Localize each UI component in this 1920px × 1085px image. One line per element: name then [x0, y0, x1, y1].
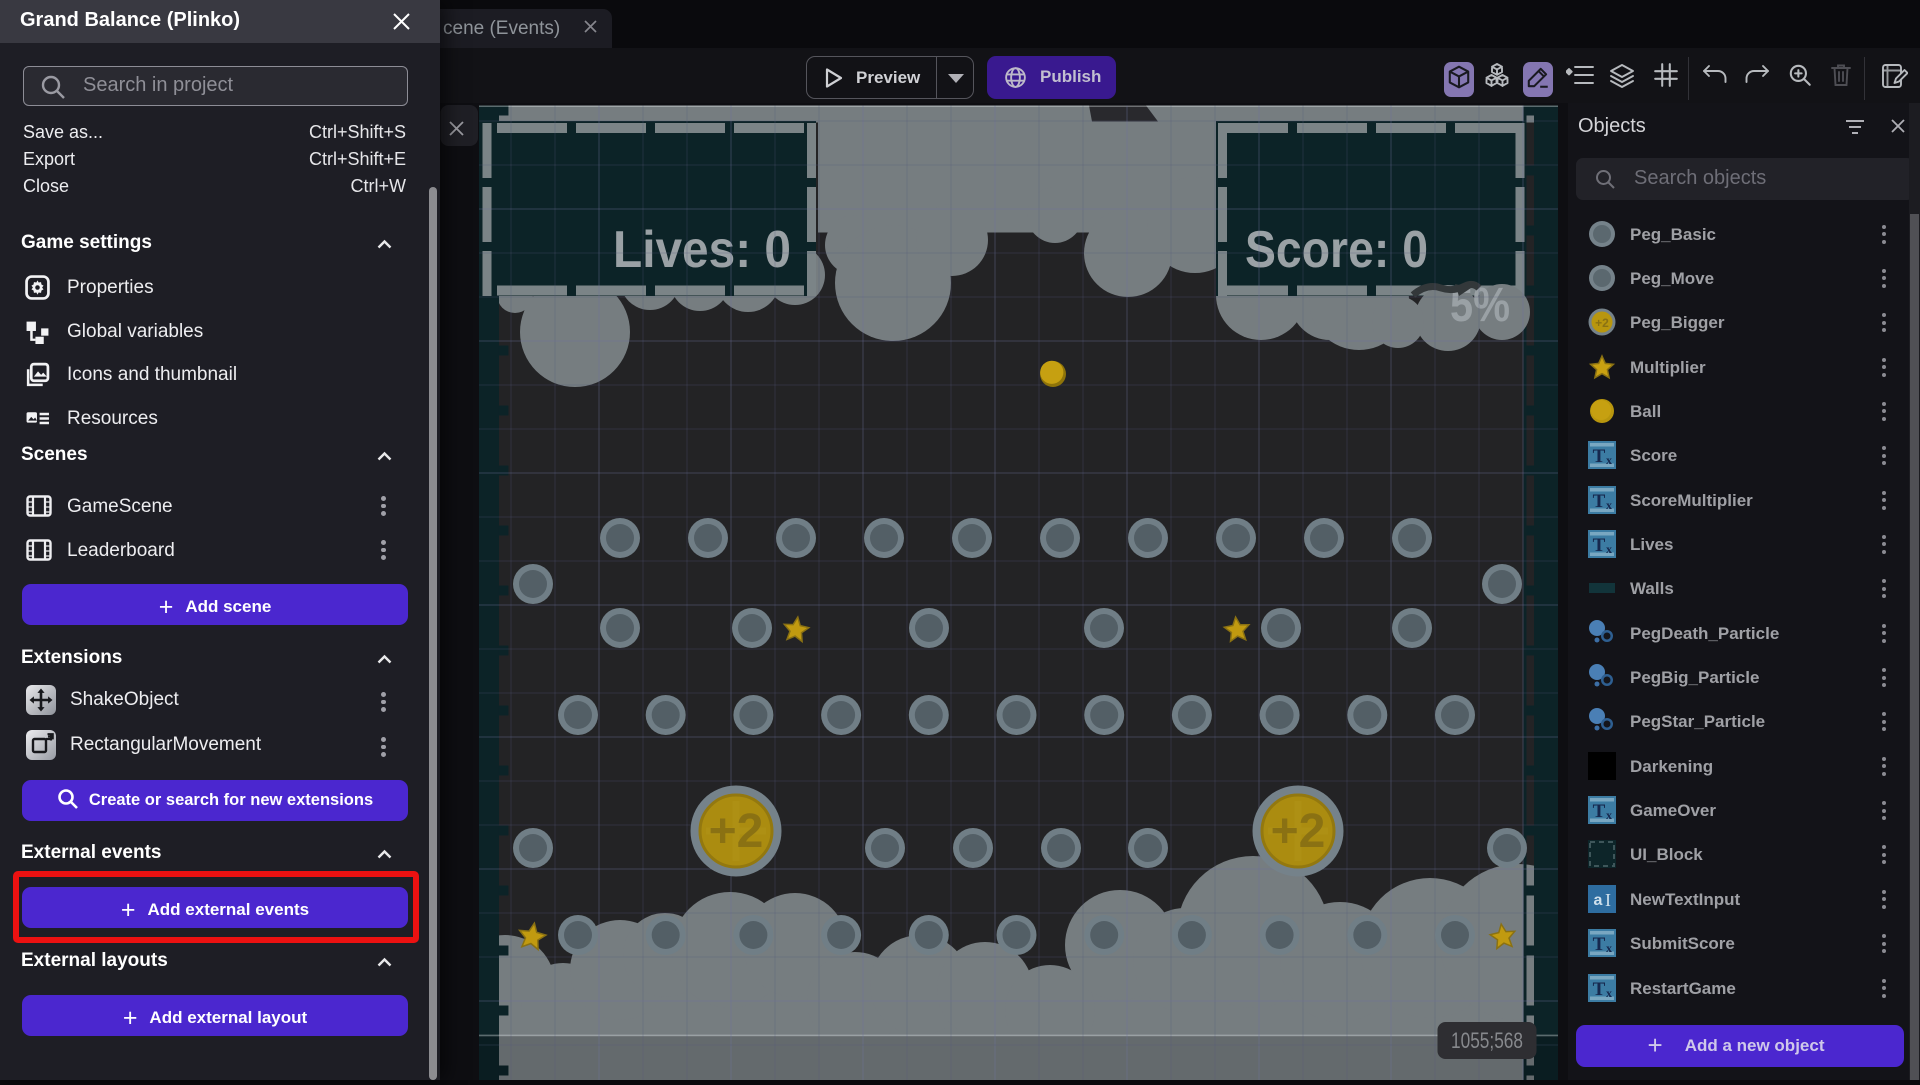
svg-text:T: T: [1593, 491, 1606, 512]
svg-text:1055;568: 1055;568: [1451, 1028, 1523, 1053]
svg-text:x: x: [1606, 498, 1612, 512]
svg-text:T: T: [1593, 979, 1606, 1000]
svg-text:T: T: [1593, 535, 1606, 556]
svg-text:T: T: [1593, 934, 1606, 955]
svg-text:+2: +2: [1271, 805, 1326, 858]
svg-text:x: x: [1606, 808, 1612, 822]
svg-text:I: I: [1605, 890, 1611, 910]
svg-text:T: T: [1593, 446, 1606, 467]
svg-text:Lives: 0: Lives: 0: [613, 221, 791, 279]
svg-text:x: x: [1606, 542, 1612, 556]
svg-text:x: x: [1606, 453, 1612, 467]
svg-text:x: x: [1606, 941, 1612, 955]
svg-text:x: x: [1606, 986, 1612, 1000]
svg-text:+2: +2: [1595, 316, 1609, 330]
svg-text:T: T: [1593, 801, 1606, 822]
svg-text:+2: +2: [709, 805, 764, 858]
svg-text:a: a: [1594, 892, 1603, 909]
svg-text:Score: 0: Score: 0: [1245, 221, 1428, 279]
